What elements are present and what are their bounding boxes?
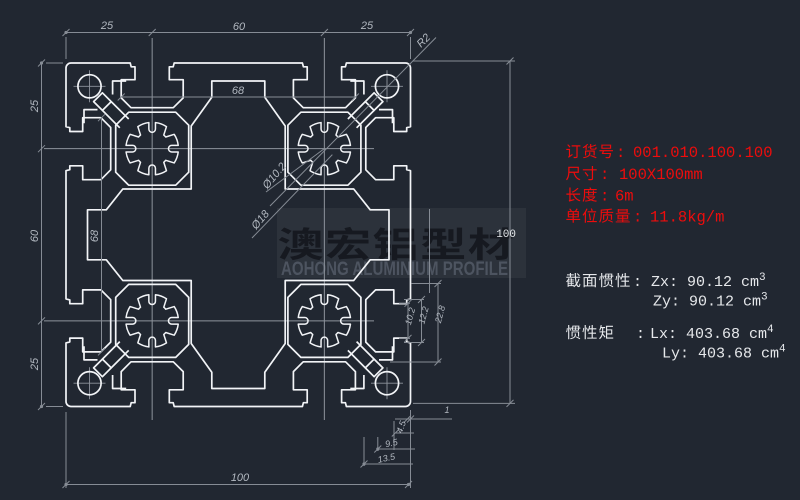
svg-text:Ly: 403.68 cm4: Ly: 403.68 cm4 <box>662 344 786 363</box>
svg-text:001.010.100.100: 001.010.100.100 <box>633 144 773 162</box>
svg-text:100X100mm: 100X100mm <box>619 166 703 184</box>
svg-text:1: 1 <box>444 405 449 415</box>
svg-text:100: 100 <box>496 229 516 241</box>
svg-text:Lx: 403.68 cm4: Lx: 403.68 cm4 <box>650 324 774 343</box>
svg-text:25: 25 <box>29 99 41 113</box>
svg-text:11.8kg/m: 11.8kg/m <box>650 209 724 227</box>
svg-text::: : <box>616 144 625 162</box>
svg-text:25: 25 <box>360 20 374 32</box>
svg-text::: : <box>636 326 645 343</box>
svg-text::: : <box>600 166 609 184</box>
svg-text:6m: 6m <box>615 188 634 206</box>
svg-text:60: 60 <box>29 229 41 242</box>
svg-text:Zy: 90.12 cm3: Zy: 90.12 cm3 <box>653 292 768 311</box>
svg-text:60: 60 <box>233 21 246 33</box>
svg-text:: Zx: 90.12 cm3: : Zx: 90.12 cm3 <box>633 272 766 291</box>
svg-text:68: 68 <box>232 85 245 97</box>
svg-text:100: 100 <box>231 472 250 484</box>
svg-text:AOHONG ALUMINIUM PROFILE: AOHONG ALUMINIUM PROFILE <box>281 259 508 280</box>
svg-text:25: 25 <box>29 357 41 371</box>
svg-text::: : <box>600 188 609 206</box>
svg-text:68: 68 <box>89 229 101 242</box>
svg-text:25: 25 <box>100 20 114 32</box>
svg-text::: : <box>633 209 642 227</box>
